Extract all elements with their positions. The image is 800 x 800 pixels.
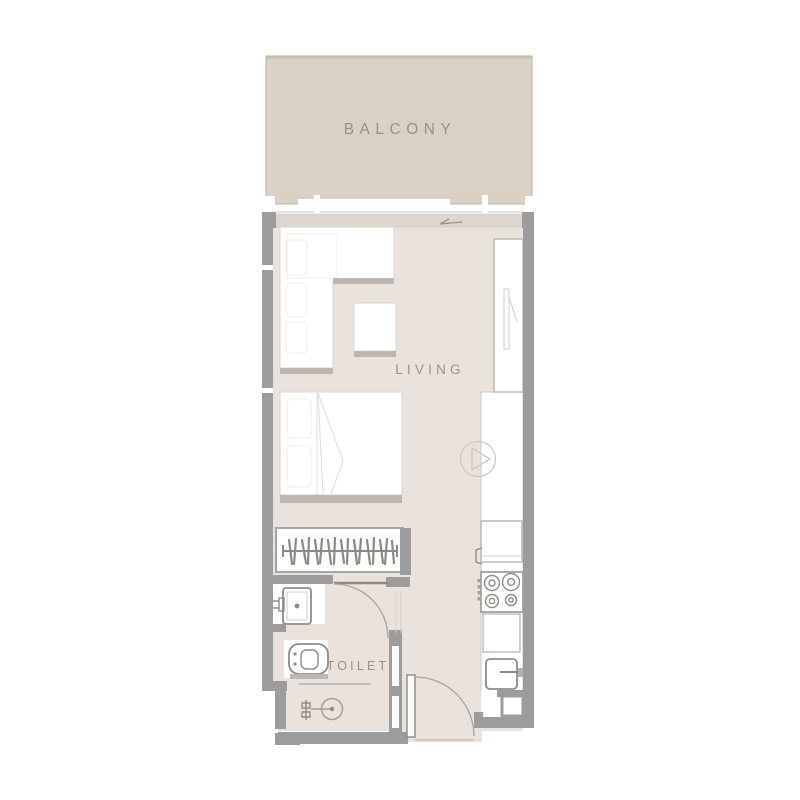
sliding-door-panel-right — [412, 205, 520, 211]
sliding-door-post-right — [482, 195, 488, 213]
kitchen-cabinet — [476, 521, 522, 564]
shower-drain-center — [330, 707, 334, 711]
balcony-area: BALCONY — [266, 56, 532, 204]
wall-toilet-east-inset — [392, 696, 399, 728]
entry-door-leaf — [407, 675, 415, 737]
wall-left-joint — [262, 265, 273, 270]
double-bed — [280, 392, 402, 503]
coffee-table — [354, 303, 396, 357]
kitchen-sink — [486, 659, 523, 689]
alcove-cabinet — [502, 696, 523, 716]
sliding-door-post-left — [314, 195, 320, 213]
stove-knob — [478, 585, 482, 589]
wc-button — [293, 662, 296, 665]
wall-lintel — [273, 214, 523, 227]
wall-right-lower — [523, 690, 534, 728]
stove-knob — [478, 597, 482, 601]
faucet-base — [518, 668, 523, 677]
wc-shadow — [290, 674, 328, 679]
wall-basin-stub — [262, 624, 286, 632]
wardrobe-with-hangers — [276, 528, 403, 572]
sliding-door-end-left — [263, 196, 275, 208]
wall-wardrobe-chunk — [400, 528, 411, 575]
bed-outline — [280, 392, 402, 495]
balcony-label: BALCONY — [344, 121, 457, 138]
living-label: LIVING — [395, 362, 464, 377]
toilet-label: TOILET — [327, 659, 390, 673]
wall-toilet-door-stub — [386, 577, 410, 587]
wc-toilet — [289, 644, 328, 679]
bed-shadow — [280, 495, 402, 503]
washbasin-drain — [295, 604, 300, 609]
coffee-table-top — [354, 303, 396, 351]
wall-left — [262, 212, 273, 691]
floor-plan: BALCONY — [0, 0, 800, 800]
sliding-door-panel-left — [298, 199, 450, 205]
wall-bottom — [278, 732, 408, 744]
wall-right — [523, 212, 534, 692]
sofa-shadow-left — [280, 368, 333, 374]
stove-knob — [478, 591, 482, 595]
stove-knob — [478, 579, 482, 583]
wall-toilet-east-inset — [392, 646, 399, 686]
sofa-shadow-top — [333, 278, 394, 284]
wc-button — [293, 652, 296, 655]
wall-shower-jog — [262, 681, 287, 691]
stove-4-burner — [478, 572, 524, 612]
kitchen-sink-icon — [486, 659, 517, 689]
counter-box — [483, 614, 520, 652]
wall-left-joint — [262, 388, 273, 393]
sliding-door-end-right — [525, 196, 537, 208]
tall-closet — [494, 239, 523, 392]
wall-shower-side — [275, 691, 286, 729]
wall-cap-top-left — [262, 212, 276, 228]
wall-toilet-top — [272, 575, 333, 584]
coffee-table-shadow — [354, 351, 396, 357]
